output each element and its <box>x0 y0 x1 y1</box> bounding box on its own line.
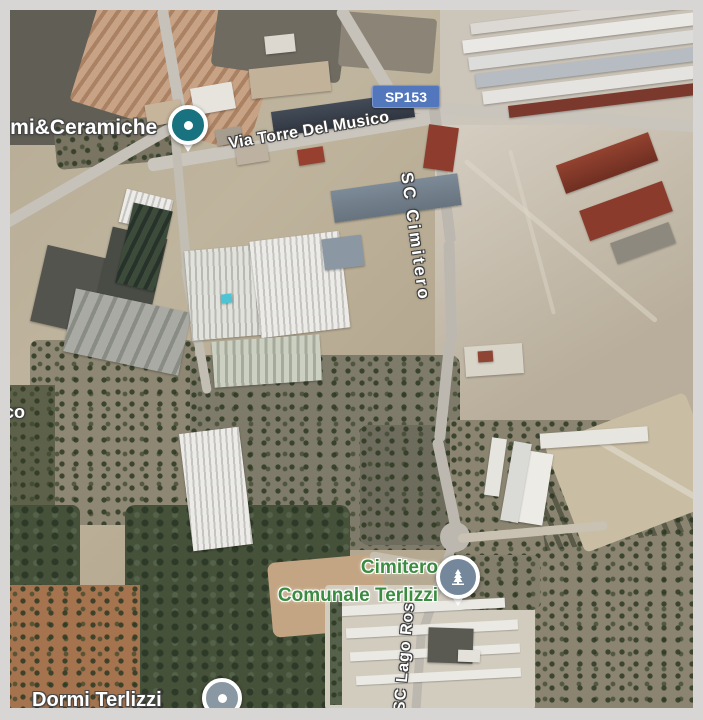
place-pin-icon-bottom[interactable] <box>202 678 242 708</box>
cemetery-pin-icon[interactable] <box>436 555 480 617</box>
building-small-red <box>478 350 494 362</box>
building-small <box>458 650 480 663</box>
road-label-fragment-co: co <box>10 402 25 423</box>
building-blue-roof-small <box>321 235 364 271</box>
cypress-tree-icon <box>449 568 467 586</box>
building-red-roof-sp153 <box>423 124 459 172</box>
pin-dot <box>184 121 193 130</box>
building-small <box>464 343 524 377</box>
pin-dot <box>218 694 227 703</box>
place-label-marmi-ceramiche[interactable]: rmi&Ceramiche <box>10 116 157 140</box>
place-label-line2: Comunale Terlizzi <box>238 582 438 610</box>
pin-circle <box>202 678 242 708</box>
place-label-dormi-terlizzi[interactable]: Dormi Terlizzi <box>32 689 162 708</box>
pin-circle <box>436 555 480 599</box>
place-pin-icon[interactable] <box>168 105 208 163</box>
road-label-sc-cimitero: SC Cimitero <box>392 142 438 333</box>
building-greenhouse-lower <box>212 334 323 387</box>
screenshot-root: { "frame": { "color": "#d7d6d5" }, "map"… <box>0 0 703 720</box>
building-greenhouse-a <box>184 245 262 341</box>
building-small-red <box>297 146 325 166</box>
building-cyan-object <box>220 293 232 303</box>
place-label-line1: Cimitero <box>238 554 438 582</box>
cemetery-cypress-edge <box>330 595 342 705</box>
place-label-cimitero-comunale-terlizzi[interactable]: Cimitero Comunale Terlizzi <box>238 554 438 610</box>
satellite-map-canvas[interactable]: SP153 Via Torre Del Musico SC Cimitero S… <box>10 10 693 708</box>
pin-circle <box>168 105 208 145</box>
building-small <box>264 33 296 54</box>
